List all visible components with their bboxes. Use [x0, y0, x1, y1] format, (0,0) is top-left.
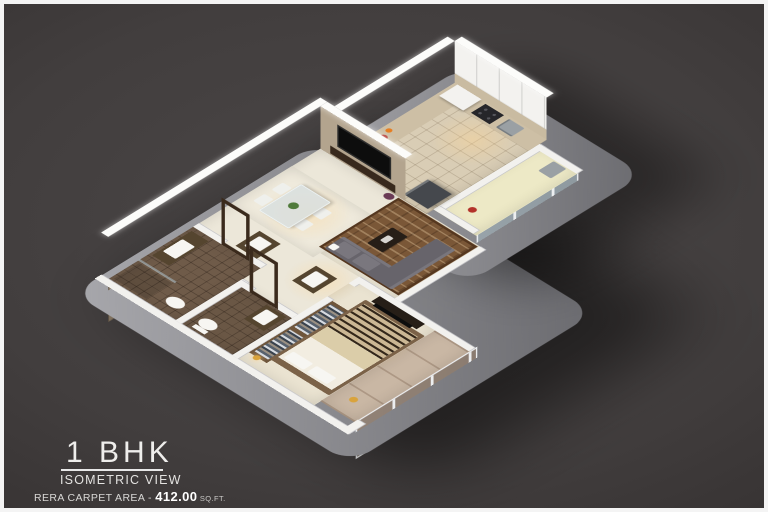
title-divider: [61, 469, 163, 471]
plan-title: 1 BHK: [66, 436, 173, 470]
carpet-area-unit: SQ.FT.: [197, 494, 225, 503]
carpet-area-label: RERA CARPET AREA -: [34, 492, 155, 504]
plan-subtitle: ISOMETRIC VIEW: [60, 473, 182, 487]
render-canvas: 1 BHK ISOMETRIC VIEW RERA CARPET AREA - …: [0, 0, 768, 512]
floor-plan: [108, 75, 684, 430]
carpet-area-line: RERA CARPET AREA - 412.00 SQ.FT.: [34, 489, 226, 504]
carpet-area-value: 412.00: [155, 489, 197, 504]
